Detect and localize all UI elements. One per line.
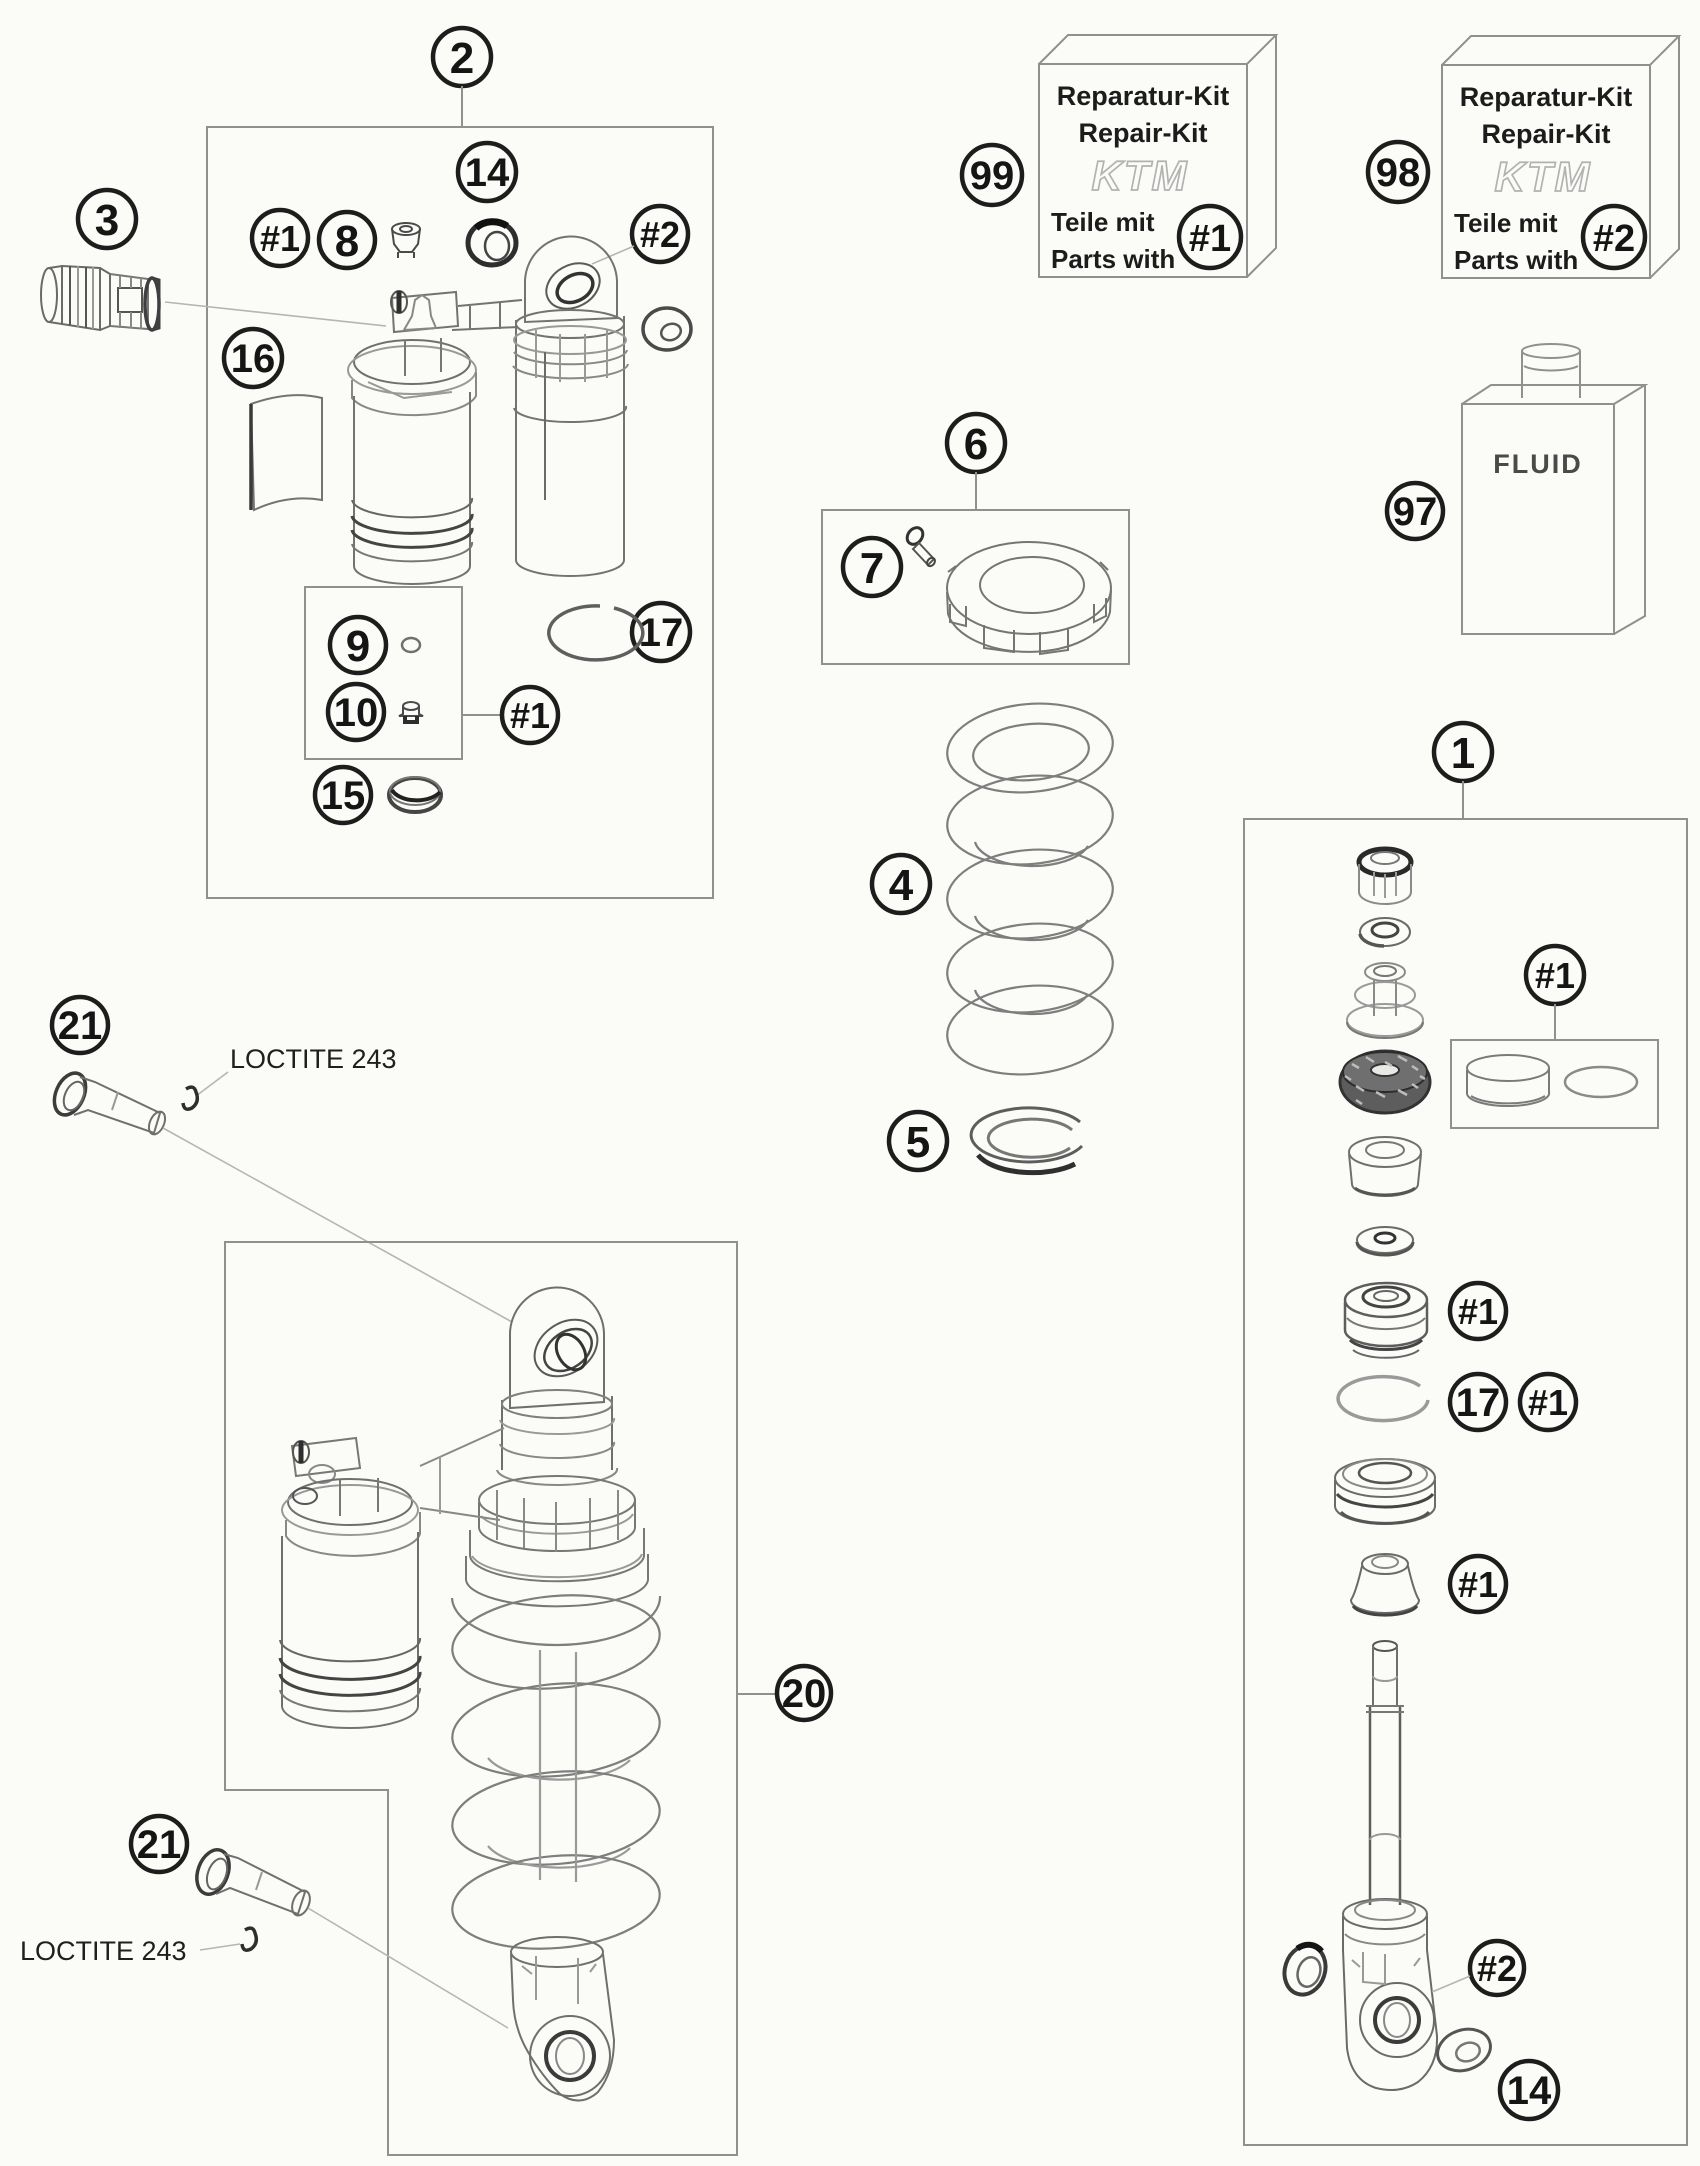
svg-text:16: 16	[231, 337, 276, 381]
svg-text:1: 1	[1451, 729, 1475, 778]
svg-text:Reparatur-Kit: Reparatur-Kit	[1057, 81, 1230, 111]
svg-text:#1: #1	[1458, 1564, 1498, 1605]
svg-text:10: 10	[334, 691, 379, 735]
svg-text:FLUID: FLUID	[1493, 449, 1582, 479]
svg-text:21: 21	[58, 1004, 103, 1048]
svg-text:99: 99	[970, 154, 1015, 198]
svg-text:#1: #1	[1189, 218, 1231, 260]
svg-text:5: 5	[906, 1118, 930, 1167]
svg-text:#1: #1	[1535, 955, 1575, 996]
svg-text:KTM: KTM	[1092, 152, 1189, 199]
svg-text:14: 14	[1507, 2069, 1552, 2113]
svg-text:2: 2	[450, 34, 474, 83]
svg-text:KTM: KTM	[1495, 153, 1592, 200]
svg-text:Reparatur-Kit: Reparatur-Kit	[1460, 82, 1633, 112]
svg-text:7: 7	[860, 544, 884, 593]
svg-text:98: 98	[1376, 151, 1421, 195]
svg-text:4: 4	[889, 861, 914, 910]
svg-text:20: 20	[782, 1672, 827, 1716]
svg-text:97: 97	[1393, 490, 1438, 534]
svg-text:21: 21	[137, 1823, 182, 1867]
svg-text:6: 6	[964, 420, 988, 469]
svg-text:Teile mit: Teile mit	[1454, 208, 1558, 238]
svg-text:#2: #2	[640, 214, 680, 255]
svg-text:LOCTITE 243: LOCTITE 243	[20, 1936, 187, 1966]
svg-text:#2: #2	[1593, 218, 1635, 260]
svg-text:9: 9	[346, 622, 370, 671]
svg-text:15: 15	[321, 774, 366, 818]
svg-text:#1: #1	[510, 695, 550, 736]
svg-text:Parts with: Parts with	[1454, 245, 1578, 275]
svg-text:Parts with: Parts with	[1051, 244, 1175, 274]
svg-text:#1: #1	[260, 218, 300, 259]
svg-text:Repair-Kit: Repair-Kit	[1481, 119, 1610, 149]
svg-text:17: 17	[639, 611, 684, 655]
svg-text:17: 17	[1456, 1381, 1501, 1425]
svg-text:LOCTITE 243: LOCTITE 243	[230, 1044, 397, 1074]
svg-text:14: 14	[465, 151, 510, 195]
svg-text:#1: #1	[1528, 1382, 1568, 1423]
svg-text:Teile mit: Teile mit	[1051, 207, 1155, 237]
svg-text:Repair-Kit: Repair-Kit	[1078, 118, 1207, 148]
svg-text:#2: #2	[1477, 1948, 1517, 1989]
svg-text:#1: #1	[1458, 1291, 1498, 1332]
svg-text:8: 8	[335, 217, 359, 266]
svg-text:3: 3	[95, 196, 119, 245]
